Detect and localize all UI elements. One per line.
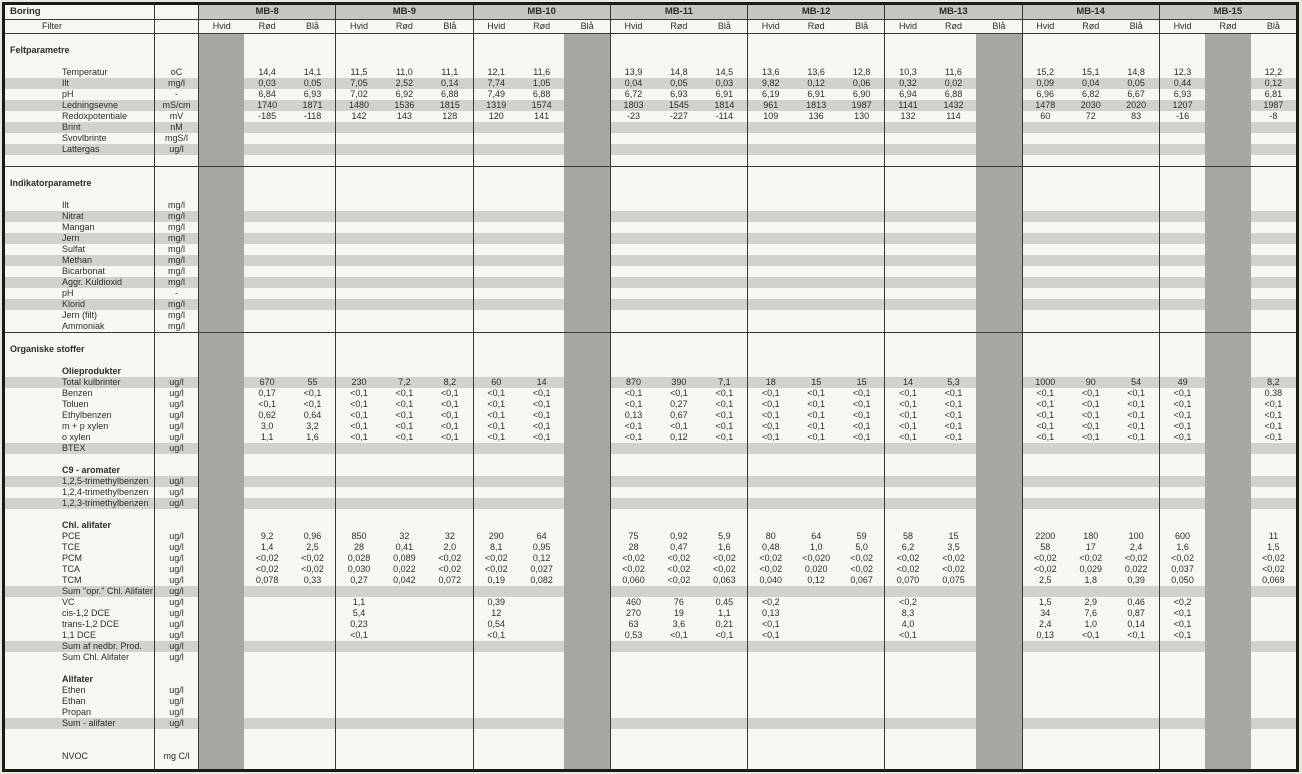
- table-row: [5, 509, 1296, 520]
- value-cell: [290, 729, 335, 740]
- value-cell: [884, 56, 930, 67]
- row-label: Ilt: [5, 78, 155, 89]
- value-cell: 3,6: [656, 619, 701, 630]
- disabled-column-band: [199, 56, 244, 67]
- table-row: RedoxpotentialemV-185-118142143128120141…: [5, 111, 1296, 122]
- value-cell: [290, 167, 335, 178]
- value-cell: [839, 597, 884, 608]
- value-cell: [931, 244, 976, 255]
- disabled-column-band: [1205, 222, 1250, 233]
- value-cell: 83: [1113, 111, 1158, 122]
- value-cell: [747, 641, 793, 652]
- value-cell: [473, 487, 519, 498]
- value-cell: [884, 520, 930, 531]
- value-cell: 0,62: [244, 410, 289, 421]
- value-cell: [747, 167, 793, 178]
- value-cell: <0,02: [702, 564, 747, 575]
- value-cell: [290, 740, 335, 751]
- filter-cell: Rød: [1205, 20, 1250, 33]
- value-cell: [473, 167, 519, 178]
- value-cell: [1251, 56, 1296, 67]
- value-cell: [1251, 155, 1296, 166]
- value-cell: [290, 509, 335, 520]
- value-cell: [335, 321, 381, 332]
- value-cell: [1113, 454, 1158, 465]
- value-cell: [793, 729, 838, 740]
- value-cell: 290: [473, 531, 519, 542]
- value-cell: [656, 333, 701, 344]
- value-cell: 6,2: [884, 542, 930, 553]
- value-cell: [335, 344, 381, 355]
- value-cell: [1068, 144, 1113, 155]
- value-cell: [884, 707, 930, 718]
- table-row: TCAug/l<0,02<0,020,0300,022<0,02<0,020,0…: [5, 564, 1296, 575]
- value-cell: [473, 144, 519, 155]
- value-cell: [382, 200, 427, 211]
- value-cell: [702, 762, 747, 772]
- disabled-column-band: [564, 277, 609, 288]
- value-cell: [1113, 520, 1158, 531]
- value-cell: [931, 255, 976, 266]
- value-cell: [335, 355, 381, 366]
- value-cell: [1022, 476, 1068, 487]
- value-cell: [1113, 167, 1158, 178]
- value-cell: [610, 310, 656, 321]
- disabled-column-band: [1205, 762, 1250, 772]
- filter-header-row: FilterHvidRødBlåHvidRødBlåHvidRødBlåHvid…: [5, 20, 1296, 34]
- disabled-column-band: [1205, 211, 1250, 222]
- value-cell: [747, 476, 793, 487]
- value-cell: [519, 641, 564, 652]
- value-cell: [747, 652, 793, 663]
- disabled-column-band: [199, 178, 244, 189]
- filter-cell: Rød: [382, 20, 427, 33]
- value-cell: [473, 266, 519, 277]
- value-cell: [1159, 652, 1205, 663]
- unit-cell: ug/l: [155, 685, 199, 696]
- disabled-column-band: [1205, 266, 1250, 277]
- value-cell: [244, 233, 289, 244]
- value-cell: [610, 344, 656, 355]
- disabled-column-band: [976, 465, 1021, 476]
- value-cell: 2,4: [1113, 542, 1158, 553]
- value-cell: [793, 200, 838, 211]
- disabled-column-band: [199, 167, 244, 178]
- value-cell: [793, 751, 838, 762]
- disabled-column-band: [199, 575, 244, 586]
- row-label: Chl. alifater: [5, 520, 155, 531]
- value-cell: [427, 211, 472, 222]
- value-cell: [793, 155, 838, 166]
- value-cell: 3,2: [290, 421, 335, 432]
- value-cell: [290, 619, 335, 630]
- value-cell: [610, 454, 656, 465]
- disabled-column-band: [976, 619, 1021, 630]
- table-row: BTEXug/l: [5, 443, 1296, 454]
- disabled-column-band: [976, 133, 1021, 144]
- value-cell: 1987: [839, 100, 884, 111]
- value-cell: [702, 652, 747, 663]
- value-cell: [290, 56, 335, 67]
- value-cell: [793, 45, 838, 56]
- value-cell: [382, 155, 427, 166]
- row-spacer-label: [5, 740, 155, 751]
- disabled-column-band: [976, 233, 1021, 244]
- value-cell: [1022, 586, 1068, 597]
- disabled-column-band: [1205, 476, 1250, 487]
- value-cell: [702, 685, 747, 696]
- disabled-column-band: [1205, 144, 1250, 155]
- value-cell: <0,1: [290, 399, 335, 410]
- value-cell: [747, 718, 793, 729]
- value-cell: [335, 56, 381, 67]
- value-cell: [747, 740, 793, 751]
- disabled-column-band: [199, 244, 244, 255]
- value-cell: [1113, 255, 1158, 266]
- value-cell: [1022, 144, 1068, 155]
- value-cell: [1068, 288, 1113, 299]
- value-cell: 1,6: [290, 432, 335, 443]
- value-cell: [884, 729, 930, 740]
- value-cell: [1068, 200, 1113, 211]
- value-cell: [931, 211, 976, 222]
- value-cell: 7,02: [335, 89, 381, 100]
- value-cell: [473, 355, 519, 366]
- value-cell: -16: [1159, 111, 1205, 122]
- value-cell: [1251, 707, 1296, 718]
- value-cell: [1113, 266, 1158, 277]
- unit-cell: ug/l: [155, 410, 199, 421]
- unit-cell: ug/l: [155, 531, 199, 542]
- value-cell: [382, 685, 427, 696]
- value-cell: [427, 443, 472, 454]
- unit-cell: mg/l: [155, 233, 199, 244]
- disabled-column-band: [564, 553, 609, 564]
- value-cell: [244, 509, 289, 520]
- value-cell: <0,1: [931, 388, 976, 399]
- value-cell: [519, 487, 564, 498]
- disabled-column-band: [1205, 344, 1250, 355]
- value-cell: [1251, 144, 1296, 155]
- value-cell: [382, 366, 427, 377]
- value-cell: 14,5: [702, 67, 747, 78]
- value-cell: [884, 155, 930, 166]
- disabled-column-band: [1205, 586, 1250, 597]
- value-cell: [335, 333, 381, 344]
- value-cell: [1113, 476, 1158, 487]
- boring-header-mb-8: MB-8: [199, 5, 335, 19]
- disabled-column-band: [199, 454, 244, 465]
- table-row: BrintnM: [5, 122, 1296, 133]
- value-cell: [382, 696, 427, 707]
- value-cell: <0,1: [702, 630, 747, 641]
- value-cell: [335, 487, 381, 498]
- value-cell: [382, 244, 427, 255]
- value-cell: [1159, 34, 1205, 45]
- disabled-column-band: [199, 122, 244, 133]
- value-cell: 7,05: [335, 78, 381, 89]
- unit-cell: nM: [155, 122, 199, 133]
- value-cell: [382, 233, 427, 244]
- value-cell: [1022, 641, 1068, 652]
- unit-cell: [155, 155, 199, 166]
- disabled-column-band: [199, 740, 244, 751]
- value-cell: [793, 520, 838, 531]
- disabled-column-band: [1205, 696, 1250, 707]
- value-cell: <0,1: [473, 630, 519, 641]
- value-cell: 5,9: [702, 531, 747, 542]
- value-cell: [1159, 299, 1205, 310]
- table-row: 1,2,4-trimethylbenzenug/l: [5, 487, 1296, 498]
- value-cell: [382, 729, 427, 740]
- disabled-column-band: [1205, 244, 1250, 255]
- disabled-column-band: [1205, 189, 1250, 200]
- value-cell: [839, 233, 884, 244]
- value-cell: [1068, 344, 1113, 355]
- value-cell: [1022, 366, 1068, 377]
- value-cell: [656, 178, 701, 189]
- value-cell: <0,02: [1022, 553, 1068, 564]
- disabled-column-band: [564, 100, 609, 111]
- value-cell: <0,1: [1068, 421, 1113, 432]
- value-cell: [884, 310, 930, 321]
- value-cell: <0,1: [931, 410, 976, 421]
- value-cell: [473, 663, 519, 674]
- value-cell: [427, 751, 472, 762]
- value-cell: 15: [931, 531, 976, 542]
- value-cell: 1987: [1251, 100, 1296, 111]
- value-cell: [519, 178, 564, 189]
- value-cell: [931, 476, 976, 487]
- disabled-column-band: [199, 564, 244, 575]
- value-cell: [519, 255, 564, 266]
- value-cell: [244, 619, 289, 630]
- value-cell: [427, 299, 472, 310]
- value-cell: <0,02: [702, 553, 747, 564]
- value-cell: [473, 244, 519, 255]
- value-cell: [610, 465, 656, 476]
- unit-cell: ug/l: [155, 421, 199, 432]
- value-cell: [839, 333, 884, 344]
- value-cell: [839, 586, 884, 597]
- value-cell: <0,1: [931, 399, 976, 410]
- value-cell: [839, 641, 884, 652]
- disabled-column-band: [976, 288, 1021, 299]
- value-cell: [1113, 155, 1158, 166]
- disabled-column-band: [564, 575, 609, 586]
- value-cell: [290, 288, 335, 299]
- value-cell: [519, 740, 564, 751]
- value-cell: [1159, 696, 1205, 707]
- row-label: 1,2,5-trimethylbenzen: [5, 476, 155, 487]
- table-row: Ammoniakmg/l: [5, 321, 1296, 333]
- value-cell: <0,1: [1251, 421, 1296, 432]
- disabled-column-band: [564, 641, 609, 652]
- value-cell: [931, 266, 976, 277]
- value-cell: [290, 178, 335, 189]
- value-cell: [931, 155, 976, 166]
- value-cell: [1113, 696, 1158, 707]
- value-cell: [702, 144, 747, 155]
- disabled-column-band: [199, 674, 244, 685]
- disabled-column-band: [1205, 740, 1250, 751]
- value-cell: 15,2: [1022, 67, 1068, 78]
- value-cell: [702, 266, 747, 277]
- value-cell: [702, 45, 747, 56]
- value-cell: 850: [335, 531, 381, 542]
- value-cell: 0,23: [335, 619, 381, 630]
- value-cell: [610, 200, 656, 211]
- disabled-column-band: [976, 67, 1021, 78]
- value-cell: [1251, 211, 1296, 222]
- disabled-column-band: [199, 377, 244, 388]
- row-label: Klorid: [5, 299, 155, 310]
- value-cell: [931, 310, 976, 321]
- value-cell: [793, 740, 838, 751]
- disabled-column-band: [564, 377, 609, 388]
- value-cell: [931, 685, 976, 696]
- value-cell: [382, 167, 427, 178]
- value-cell: [244, 729, 289, 740]
- value-cell: [427, 344, 472, 355]
- value-cell: [839, 266, 884, 277]
- value-cell: [519, 222, 564, 233]
- value-cell: 14: [519, 377, 564, 388]
- value-cell: 1803: [610, 100, 656, 111]
- value-cell: [290, 333, 335, 344]
- disabled-column-band: [1205, 553, 1250, 564]
- disabled-column-band: [1205, 575, 1250, 586]
- row-spacer-label: [5, 56, 155, 67]
- table-row: Sum - alifaterug/l: [5, 718, 1296, 729]
- value-cell: [839, 608, 884, 619]
- value-cell: [793, 707, 838, 718]
- value-cell: 6,81: [1251, 89, 1296, 100]
- value-cell: [427, 144, 472, 155]
- value-cell: <0,1: [473, 399, 519, 410]
- disabled-column-band: [199, 421, 244, 432]
- value-cell: [931, 619, 976, 630]
- filter-cell: Hvid: [1159, 20, 1205, 33]
- disabled-column-band: [564, 178, 609, 189]
- row-label: Ilt: [5, 200, 155, 211]
- row-spacer-label: [5, 333, 155, 344]
- value-cell: [335, 233, 381, 244]
- table-row: Ethylbenzenug/l0,620,64<0,1<0,1<0,1<0,1<…: [5, 410, 1296, 421]
- filter-cell: Blå: [839, 20, 884, 33]
- value-cell: [747, 663, 793, 674]
- value-cell: [1068, 277, 1113, 288]
- value-cell: [702, 586, 747, 597]
- value-cell: [1159, 454, 1205, 465]
- value-cell: <0,1: [656, 630, 701, 641]
- value-cell: [884, 321, 930, 332]
- value-cell: 0,050: [1159, 575, 1205, 586]
- value-cell: [610, 321, 656, 332]
- value-cell: <0,1: [519, 388, 564, 399]
- disabled-column-band: [199, 718, 244, 729]
- disabled-column-band: [564, 167, 609, 178]
- value-cell: [244, 288, 289, 299]
- value-cell: 0,45: [702, 597, 747, 608]
- disabled-column-band: [564, 310, 609, 321]
- filter-header-label: Filter: [5, 20, 155, 33]
- value-cell: 1000: [1022, 377, 1068, 388]
- value-cell: <0,020: [793, 553, 838, 564]
- value-cell: -8: [1251, 111, 1296, 122]
- value-cell: <0,1: [839, 432, 884, 443]
- disabled-column-band: [564, 608, 609, 619]
- value-cell: [1022, 718, 1068, 729]
- value-cell: [244, 630, 289, 641]
- value-cell: [793, 619, 838, 630]
- value-cell: <0,1: [335, 421, 381, 432]
- value-cell: 63: [610, 619, 656, 630]
- disabled-column-band: [1205, 663, 1250, 674]
- disabled-column-band: [976, 454, 1021, 465]
- value-cell: [1113, 178, 1158, 189]
- boring-header-mb-9: MB-9: [335, 5, 472, 19]
- filter-cell: Rød: [1068, 20, 1113, 33]
- value-cell: [839, 718, 884, 729]
- value-cell: [1068, 255, 1113, 266]
- disabled-column-band: [199, 255, 244, 266]
- value-cell: [1251, 652, 1296, 663]
- value-cell: [473, 762, 519, 772]
- value-cell: <0,1: [839, 399, 884, 410]
- value-cell: 8,2: [1251, 377, 1296, 388]
- value-cell: 2,5: [290, 542, 335, 553]
- boring-header-mb-14: MB-14: [1022, 5, 1159, 19]
- value-cell: [839, 167, 884, 178]
- value-cell: [1251, 288, 1296, 299]
- value-cell: [519, 167, 564, 178]
- value-cell: 0,12: [793, 78, 838, 89]
- disabled-column-band: [976, 89, 1021, 100]
- value-cell: [839, 729, 884, 740]
- value-cell: [1251, 498, 1296, 509]
- disabled-column-band: [976, 685, 1021, 696]
- row-label: Ethylbenzen: [5, 410, 155, 421]
- value-cell: <0,1: [610, 421, 656, 432]
- disabled-column-band: [1205, 454, 1250, 465]
- value-cell: <0,1: [519, 410, 564, 421]
- value-cell: [244, 310, 289, 321]
- table-row: TemperaturoC14,414,111,511,011,112,111,6…: [5, 67, 1296, 78]
- table-row: Jern (filt)mg/l: [5, 310, 1296, 321]
- disabled-column-band: [199, 366, 244, 377]
- value-cell: [793, 133, 838, 144]
- value-cell: [1159, 277, 1205, 288]
- value-cell: [884, 244, 930, 255]
- value-cell: 1871: [290, 100, 335, 111]
- unit-cell: mg C/l: [155, 751, 199, 762]
- value-cell: [427, 498, 472, 509]
- disabled-column-band: [1205, 122, 1250, 133]
- disabled-column-band: [1205, 432, 1250, 443]
- value-cell: [747, 751, 793, 762]
- value-cell: [290, 608, 335, 619]
- table-row: Sulfatmg/l: [5, 244, 1296, 255]
- value-cell: [1251, 476, 1296, 487]
- value-cell: [1159, 718, 1205, 729]
- value-cell: [1159, 255, 1205, 266]
- disabled-column-band: [976, 421, 1021, 432]
- value-cell: [747, 344, 793, 355]
- value-cell: [335, 244, 381, 255]
- value-cell: [610, 167, 656, 178]
- value-cell: [931, 366, 976, 377]
